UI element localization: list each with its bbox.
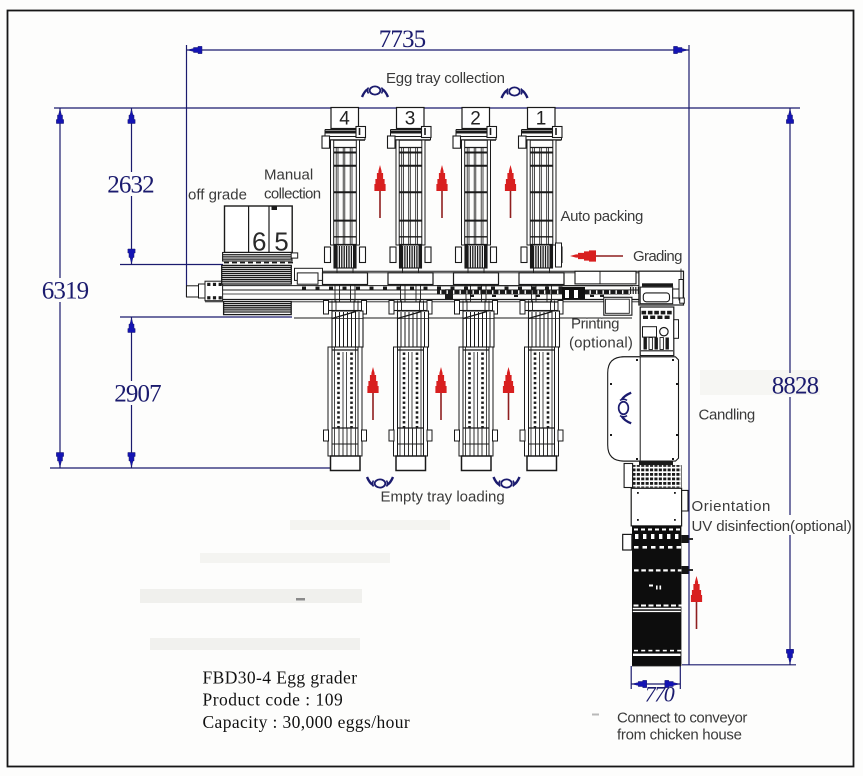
svg-text:2: 2 xyxy=(470,109,481,130)
svg-text:from chicken house: from chicken house xyxy=(617,727,742,744)
svg-text:8828: 8828 xyxy=(772,373,819,400)
svg-text:1: 1 xyxy=(536,109,547,130)
svg-text:7735: 7735 xyxy=(379,26,426,53)
svg-text:Orientation: Orientation xyxy=(692,498,771,515)
svg-text:2907: 2907 xyxy=(114,381,161,408)
svg-text:off grade: off grade xyxy=(188,187,247,204)
svg-text:Capacity : 30,000 eggs/hour: Capacity : 30,000 eggs/hour xyxy=(203,712,411,732)
svg-text:4: 4 xyxy=(339,109,350,130)
svg-text:Connect to conveyor: Connect to conveyor xyxy=(617,710,747,727)
svg-text:770: 770 xyxy=(645,682,675,707)
svg-text:FBD30-4 Egg grader: FBD30-4 Egg grader xyxy=(203,668,358,688)
svg-text:3: 3 xyxy=(405,109,416,130)
svg-text:2632: 2632 xyxy=(107,172,154,199)
svg-text:Candling: Candling xyxy=(699,407,755,424)
svg-text:Manual: Manual xyxy=(264,167,313,184)
svg-text:Product code : 109: Product code : 109 xyxy=(203,690,344,710)
svg-text:Grading: Grading xyxy=(633,248,682,265)
svg-text:Auto packing: Auto packing xyxy=(561,208,644,225)
svg-text:UV disinfection(optional): UV disinfection(optional) xyxy=(692,518,852,535)
svg-text:(optional): (optional) xyxy=(569,335,633,352)
svg-text:Printing: Printing xyxy=(571,316,619,333)
svg-text:6319: 6319 xyxy=(42,278,89,305)
svg-text:Empty tray loading: Empty tray loading xyxy=(381,489,505,506)
svg-text:Egg tray collection: Egg tray collection xyxy=(386,70,505,87)
svg-text:collection: collection xyxy=(264,186,321,203)
